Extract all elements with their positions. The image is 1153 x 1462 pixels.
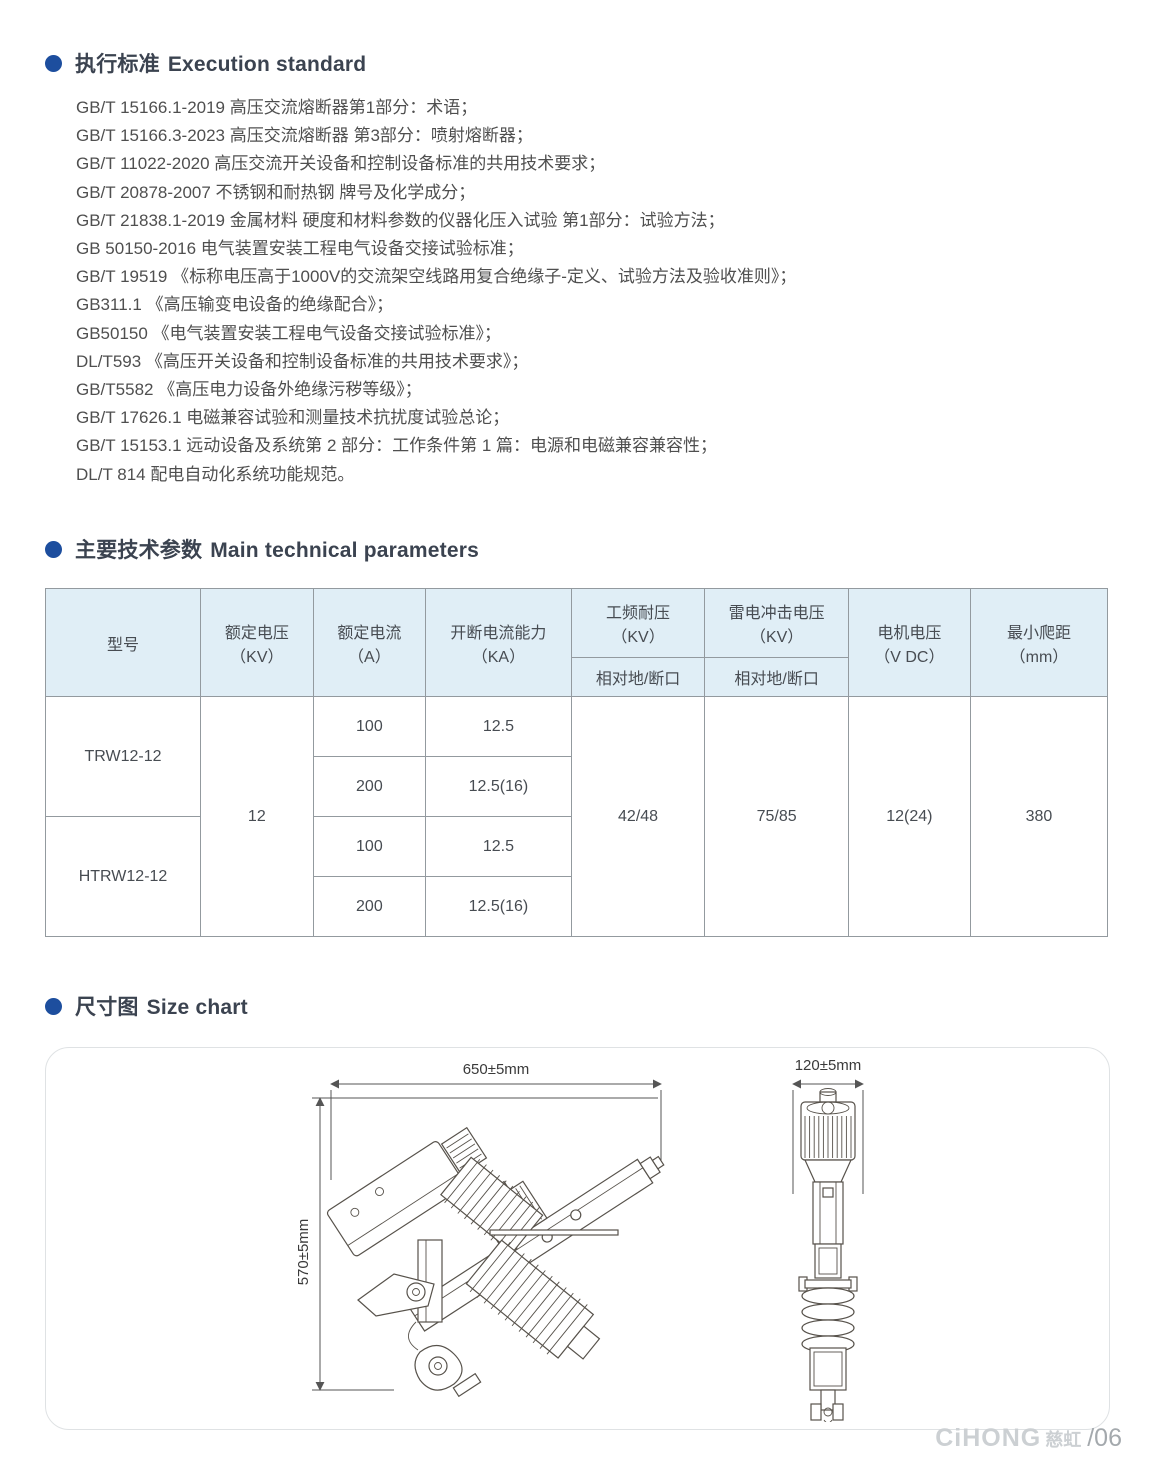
standard-item: GB/T 15166.3-2023 高压交流熔断器 第3部分：喷射熔断器； bbox=[76, 122, 1096, 150]
parameters-section-header: 主要技术参数Main technical parameters bbox=[45, 534, 479, 564]
front-height-dim-label: 570±5mm bbox=[298, 1219, 312, 1286]
section-title-en: Main technical parameters bbox=[210, 539, 479, 562]
section-title-standards: 执行标准Execution standard bbox=[75, 48, 366, 78]
cell-current: 200 bbox=[313, 757, 426, 817]
bullet-icon bbox=[45, 541, 62, 558]
standard-item: DL/T593 《高压开关设备和控制设备标准的共用技术要求》； bbox=[76, 348, 1096, 376]
cell-breaking: 12.5(16) bbox=[426, 757, 571, 817]
front-view-drawing: 650±5mm 570±5mm bbox=[298, 1054, 688, 1422]
cell-breaking: 12.5 bbox=[426, 697, 571, 757]
side-width-dim-label: 120±5mm bbox=[795, 1057, 862, 1074]
standard-item: GB/T5582 《高压电力设备外绝缘污秽等级》； bbox=[76, 376, 1096, 404]
standard-item: GB/T 15166.1-2019 高压交流熔断器第1部分：术语； bbox=[76, 94, 1096, 122]
standards-list: GB/T 15166.1-2019 高压交流熔断器第1部分：术语； GB/T 1… bbox=[76, 94, 1096, 489]
footer: CiHONG 慈虹 /06 bbox=[935, 1424, 1122, 1453]
cell-breaking: 12.5 bbox=[426, 817, 571, 877]
section-title-cn: 尺寸图 bbox=[75, 996, 139, 1019]
cell-power-freq: 42/48 bbox=[571, 697, 705, 937]
section-title-cn: 执行标准 bbox=[75, 53, 160, 76]
standard-item: GB50150 《电气装置安装工程电气设备交接试验标准》； bbox=[76, 320, 1096, 348]
sub-header-phase-ground: 相对地/断口 bbox=[705, 658, 848, 697]
col-header-power-freq: 工频耐压 （KV） bbox=[571, 589, 705, 658]
bullet-icon bbox=[45, 998, 62, 1015]
side-view-drawing: 120±5mm bbox=[762, 1054, 932, 1422]
col-header-model: 型号 bbox=[46, 589, 201, 697]
cell-rated-voltage: 12 bbox=[201, 697, 314, 937]
standard-item: GB/T 20878-2007 不锈钢和耐热钢 牌号及化学成分； bbox=[76, 179, 1096, 207]
front-width-dim-label: 650±5mm bbox=[463, 1061, 530, 1078]
col-header-breaking-capacity: 开断电流能力 （KA） bbox=[426, 589, 571, 697]
cell-creepage: 380 bbox=[970, 697, 1107, 937]
standard-item: GB/T 15153.1 远动设备及系统第 2 部分：工作条件第 1 篇：电源和… bbox=[76, 432, 1096, 460]
cell-current: 100 bbox=[313, 697, 426, 757]
brand-logo-cn: 慈虹 bbox=[1045, 1426, 1081, 1452]
standard-item: GB311.1 《高压输变电设备的绝缘配合》； bbox=[76, 291, 1096, 319]
section-title-parameters: 主要技术参数Main technical parameters bbox=[75, 534, 479, 564]
col-header-lightning: 雷电冲击电压 （KV） bbox=[705, 589, 848, 658]
col-header-motor-voltage: 电机电压 （V DC） bbox=[848, 589, 970, 697]
cell-breaking: 12.5(16) bbox=[426, 877, 571, 937]
col-header-min-creepage: 最小爬距 （mm） bbox=[970, 589, 1107, 697]
cell-model-1: TRW12-12 bbox=[46, 697, 201, 817]
section-title-size-chart: 尺寸图Size chart bbox=[75, 991, 248, 1021]
standard-item: GB/T 21838.1-2019 金属材料 硬度和材料参数的仪器化压入试验 第… bbox=[76, 207, 1096, 235]
size-chart-section-header: 尺寸图Size chart bbox=[45, 991, 248, 1021]
standard-item: GB 50150-2016 电气装置安装工程电气设备交接试验标准； bbox=[76, 235, 1096, 263]
table-row: TRW12-12 12 100 12.5 42/48 75/85 12(24) … bbox=[46, 697, 1108, 757]
brand-logo-en: CiHONG bbox=[935, 1424, 1041, 1453]
size-chart-panel: 650±5mm 570±5mm bbox=[45, 1047, 1110, 1430]
cell-motor-voltage: 12(24) bbox=[848, 697, 970, 937]
standard-item: GB/T 19519 《标称电压高于1000V的交流架空线路用复合绝缘子-定义、… bbox=[76, 263, 1096, 291]
cell-lightning: 75/85 bbox=[705, 697, 848, 937]
fuse-cutout-front-art bbox=[326, 1104, 669, 1397]
bullet-icon bbox=[45, 55, 62, 72]
cell-current: 200 bbox=[313, 877, 426, 937]
cell-current: 100 bbox=[313, 817, 426, 877]
section-title-en: Size chart bbox=[147, 996, 248, 1019]
standard-item: DL/T 814 配电自动化系统功能规范。 bbox=[76, 461, 1096, 489]
standard-item: GB/T 11022-2020 高压交流开关设备和控制设备标准的共用技术要求； bbox=[76, 150, 1096, 178]
standards-section-header: 执行标准Execution standard bbox=[45, 48, 366, 78]
fuse-cutout-side-art bbox=[799, 1089, 857, 1423]
sub-header-phase-ground: 相对地/断口 bbox=[571, 658, 705, 697]
standard-item: GB/T 17626.1 电磁兼容试验和测量技术抗扰度试验总论； bbox=[76, 404, 1096, 432]
col-header-rated-voltage: 额定电压 （KV） bbox=[201, 589, 314, 697]
page-number: /06 bbox=[1087, 1424, 1122, 1453]
cell-model-2: HTRW12-12 bbox=[46, 817, 201, 937]
section-title-cn: 主要技术参数 bbox=[75, 539, 202, 562]
col-header-rated-current: 额定电流 （A） bbox=[313, 589, 426, 697]
parameters-table: 型号 额定电压 （KV） 额定电流 （A） 开断电流能力 （KA） 工频耐压 （… bbox=[45, 588, 1108, 937]
section-title-en: Execution standard bbox=[168, 53, 366, 76]
